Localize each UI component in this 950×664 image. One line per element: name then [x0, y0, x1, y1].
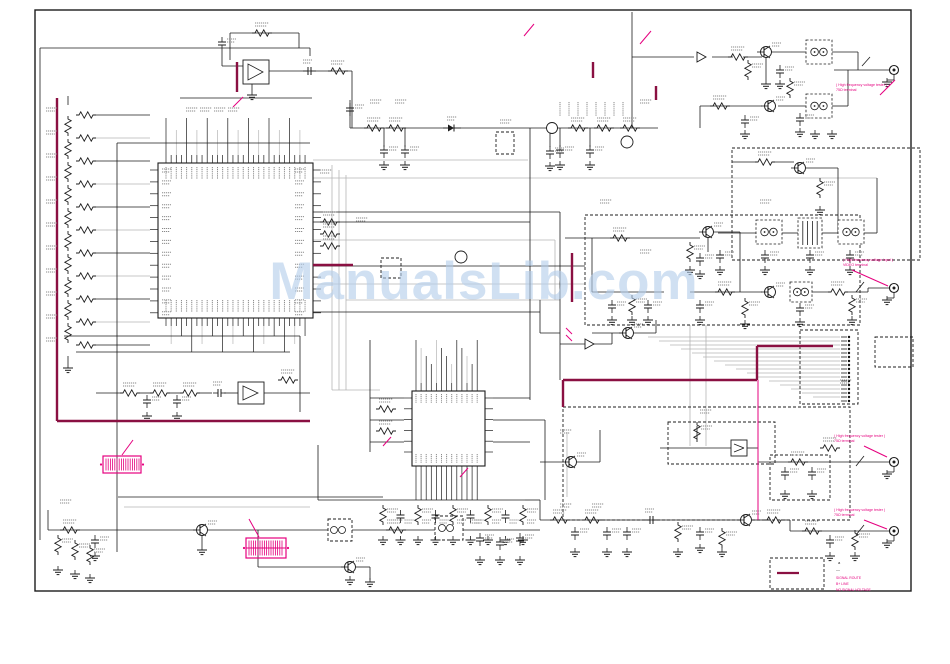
transformer: [814, 105, 816, 107]
crystal-filter: [798, 218, 822, 248]
annotation-terminal3-line2: 75Ω terminal: [834, 439, 855, 443]
terminal: [893, 461, 896, 464]
watermark: ManualsLib.com: [269, 252, 698, 311]
transformer: [823, 51, 825, 53]
connector-pin-dot: [848, 360, 850, 362]
connector-pin-dot: [848, 400, 850, 402]
legend-note-2: B+ LINE: [836, 582, 849, 586]
terminal: [893, 287, 896, 290]
annotation-terminal2-line1: ( High frequency voltage input ): [843, 258, 893, 262]
schematic-page: ( High frequency voltage tester ) 75Ω te…: [0, 0, 950, 664]
annotation-terminal4-line1: ( High frequency voltage tester ): [834, 508, 885, 512]
coil: [621, 136, 633, 148]
connector-pin-dot: [848, 364, 850, 366]
connector-pin-dot: [848, 372, 850, 374]
opamp: [243, 60, 269, 84]
connector-pin-dot: [848, 392, 850, 394]
terminal: [893, 530, 896, 533]
connector-pin-dot: [848, 340, 850, 342]
connector-pin-dot: [848, 376, 850, 378]
transformer: [756, 220, 782, 244]
connector-pin-dot: [848, 368, 850, 370]
connector-block: [243, 547, 245, 549]
legend-marker-2: —: [836, 567, 840, 572]
transformer: [855, 231, 857, 233]
coil: [547, 123, 558, 134]
connector-pin-dot: [848, 396, 850, 398]
connector-block: [100, 463, 102, 465]
connector-pin-dot: [848, 356, 850, 358]
opamp: [238, 382, 264, 404]
terminal: [893, 69, 896, 72]
transformer: [804, 291, 806, 293]
secondary-ic: [412, 391, 485, 466]
connector-pin-dot: [848, 352, 850, 354]
logic-gate: [731, 440, 747, 456]
annotation-terminal1-line2: 75Ω terminal: [836, 88, 857, 92]
transformer: [796, 291, 798, 293]
annotation-terminal2-line2: VIDEO terminal: [843, 263, 868, 267]
connector-block: [287, 547, 289, 549]
legend-note-3: NO SIGNAL VOLTAGE: [836, 588, 872, 592]
connector-pin-dot: [848, 344, 850, 346]
transformer: [814, 51, 816, 53]
annotation-terminal4-line2: 75Ω terminal: [834, 513, 855, 517]
legend-note-1: SIGNAL ROUTE: [836, 576, 862, 580]
connector-block: [142, 463, 144, 465]
schematic-diagram: ( High frequency voltage tester ) 75Ω te…: [0, 0, 950, 664]
transformer: [806, 40, 832, 64]
transformer: [806, 94, 832, 118]
transformer: [846, 231, 848, 233]
connector-pin-dot: [848, 348, 850, 350]
transformer: [838, 220, 864, 244]
annotation-terminal1-line1: ( High frequency voltage tester ): [836, 83, 887, 87]
transformer: [764, 231, 766, 233]
transformer: [823, 105, 825, 107]
connector-pin-dot: [848, 384, 850, 386]
annotation-terminal3-line1: ( High frequency voltage tester ): [834, 434, 885, 438]
transformer: [773, 231, 775, 233]
connector-pin-dot: [848, 336, 850, 338]
connector-pin-dot: [848, 388, 850, 390]
